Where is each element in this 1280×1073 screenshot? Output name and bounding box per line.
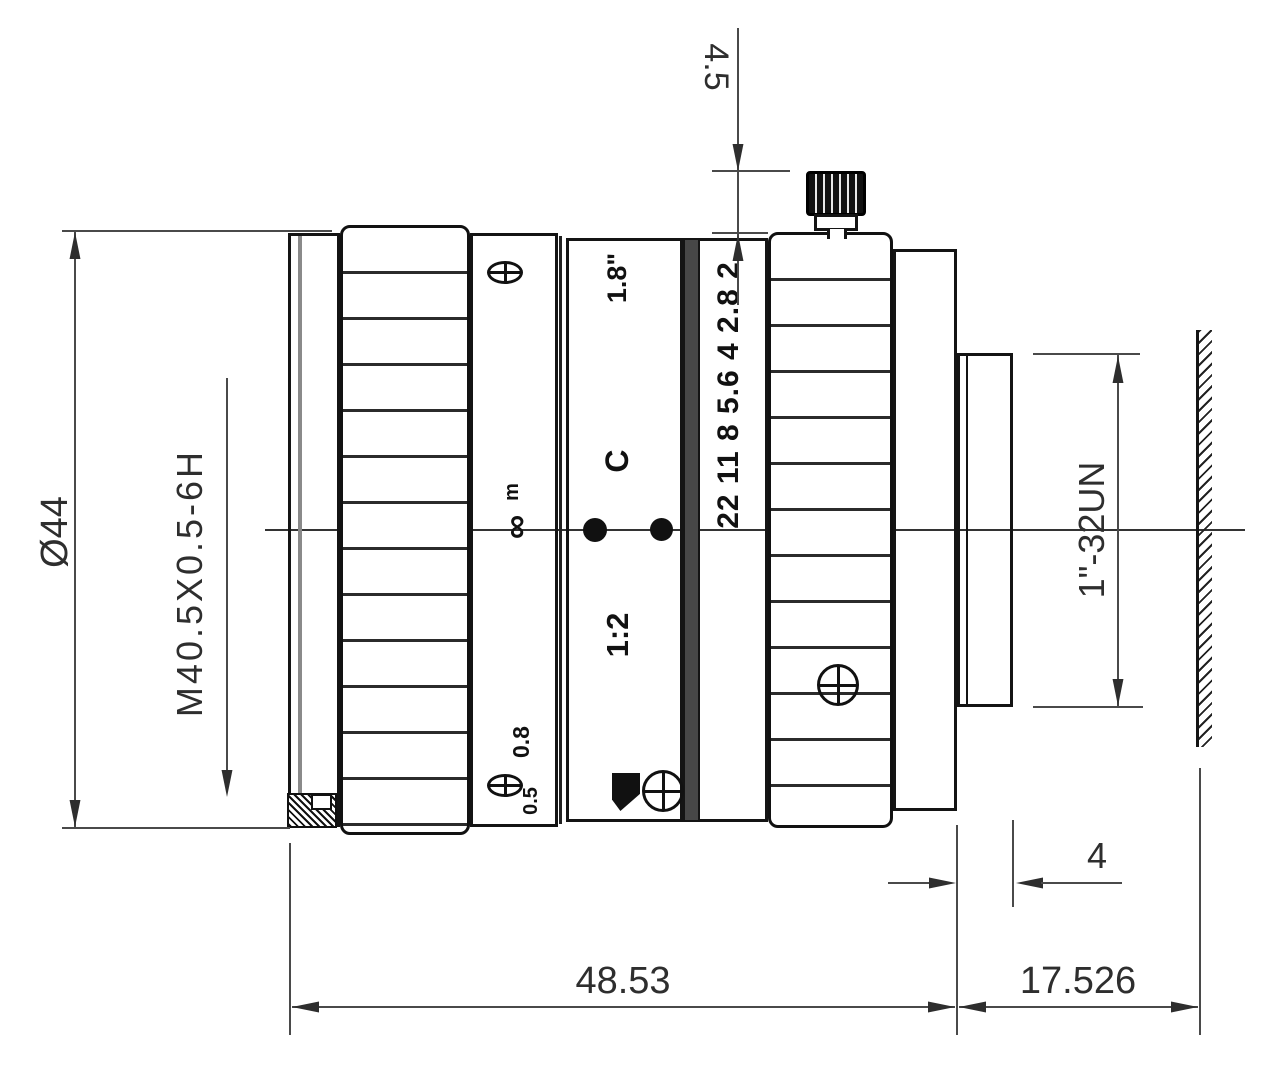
lens-technical-drawing: 1.8" C 1:2 22 11 8 5.6 4 2.8 2 m ∞ 0.8 0… — [0, 0, 1280, 1073]
dim-17526-arrow-right-icon — [1171, 1001, 1198, 1014]
index-dot — [650, 518, 673, 541]
dim-4-arrow-right-icon — [929, 877, 956, 890]
dim-dia44-arrow-down-icon — [69, 800, 82, 827]
dim-4-line-right — [1041, 882, 1122, 884]
dim-filter-thread-leader — [226, 378, 228, 778]
dim-barrel-length: 48.53 — [543, 960, 703, 1002]
dim-mount-thread: 1"-32UN — [1071, 380, 1113, 680]
lock-thumbscrew-neck — [827, 229, 847, 239]
barrel-dark-band — [683, 238, 700, 822]
mount-type-marking: C — [592, 431, 642, 491]
dim-4853-arrow-right-icon — [928, 1001, 955, 1014]
dim-4-ext-right — [1012, 820, 1014, 907]
dim-4-line-left — [888, 882, 933, 884]
max-aperture-marking: 1:2 — [593, 580, 643, 690]
dim-filter-thread: M40.5X0.5-6H — [167, 363, 213, 803]
dim-shared-ext — [956, 825, 958, 1035]
dim-mount-arrow-up-icon — [1112, 356, 1125, 383]
front-ring-shade-line — [298, 236, 302, 824]
dim-4853-ext-left — [289, 843, 291, 1035]
dim-4-arrow-left-icon — [1016, 877, 1043, 890]
dim-17526-arrow-left-icon — [959, 1001, 986, 1014]
dim-dia44-ext-bottom — [62, 827, 290, 829]
dim-mount-thread-length: 4 — [1067, 835, 1127, 877]
ring-boundary-line — [559, 236, 562, 824]
dim-front-diameter: Ø44 — [35, 452, 75, 612]
dim-dia44-arrow-up-icon — [69, 232, 82, 259]
dim-17526-line — [959, 1006, 1198, 1008]
phillips-screw-icon — [817, 664, 859, 706]
focus-knurl-ring — [340, 225, 470, 835]
dim-45-ext-top — [712, 170, 790, 172]
aperture-knurl-ring — [768, 232, 893, 828]
phillips-screw-icon — [487, 774, 523, 797]
focus-near-marking: 0.8 — [501, 707, 541, 777]
front-clamp-notch — [311, 794, 332, 810]
phillips-screw-icon — [487, 261, 523, 284]
dim-dia44-ext-top — [62, 230, 332, 232]
c-mount-relief-line — [966, 356, 968, 704]
index-dot — [583, 518, 607, 542]
front-filter-ring — [288, 233, 340, 827]
format-marking: 1.8" — [592, 218, 642, 338]
dim-17526-ext-right — [1199, 768, 1201, 1035]
image-plane-hatch — [1199, 330, 1212, 747]
dim-4853-line — [292, 1006, 955, 1008]
rear-body — [893, 249, 957, 811]
dim-mount-arrow-down-icon — [1112, 679, 1125, 706]
dim-top-clearance: 4.5 — [696, 7, 736, 127]
dim-45-ext-bottom — [712, 232, 768, 234]
infinity-marking: ∞ — [494, 505, 538, 549]
dim-mount-ext-top — [1033, 353, 1140, 355]
dim-45-arrow-down-icon — [732, 144, 745, 171]
lock-thumbscrew-knob-icon — [806, 171, 866, 216]
aperture-scale-marking: 22 11 8 5.6 4 2.8 2 — [709, 240, 749, 550]
dim-filter-thread-arrow-icon — [221, 770, 234, 797]
dim-4853-arrow-left-icon — [292, 1001, 319, 1014]
dim-flange-focal-distance: 17.526 — [998, 960, 1158, 1002]
phillips-screw-icon — [642, 770, 684, 812]
dim-mount-line — [1117, 355, 1119, 707]
dim-mount-ext-bottom — [1033, 706, 1143, 708]
